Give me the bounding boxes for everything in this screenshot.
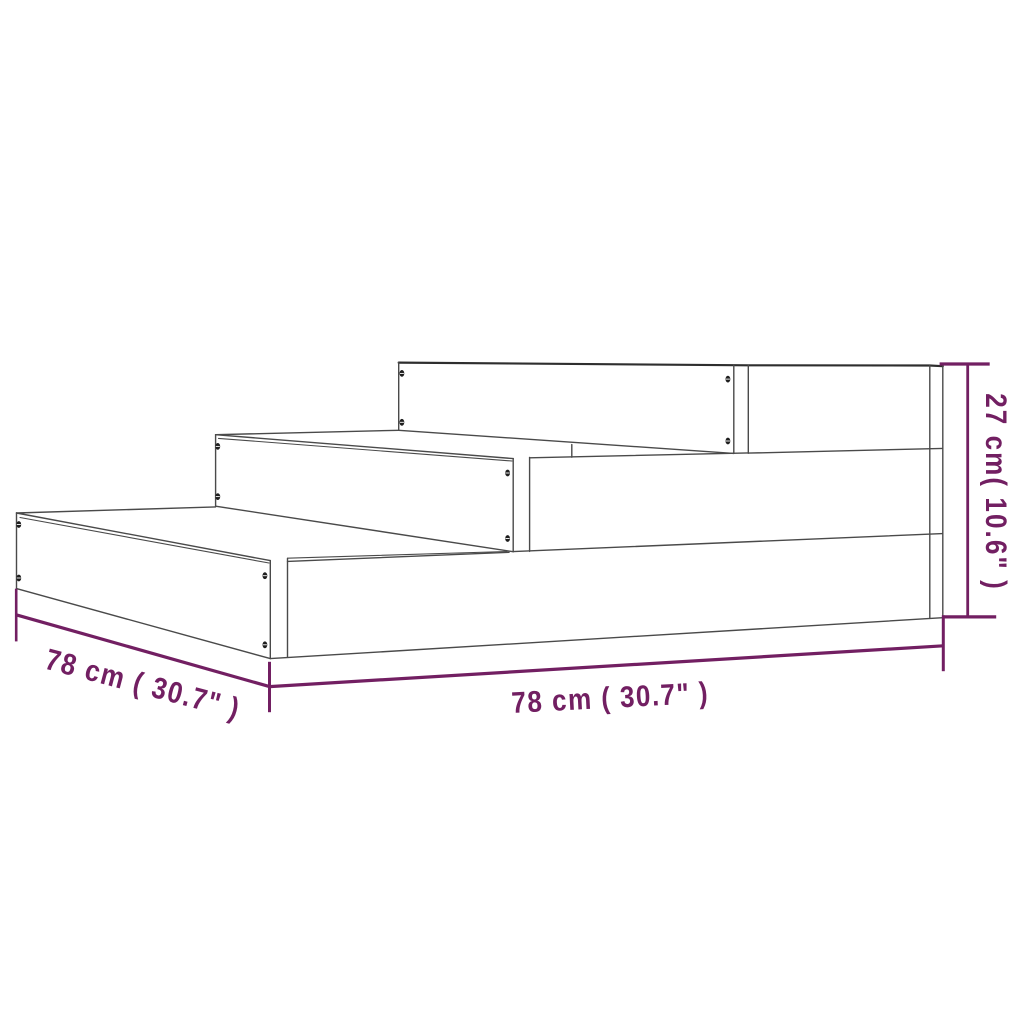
- svg-text:27 cm( 10.6" ): 27 cm( 10.6" ): [980, 393, 1013, 591]
